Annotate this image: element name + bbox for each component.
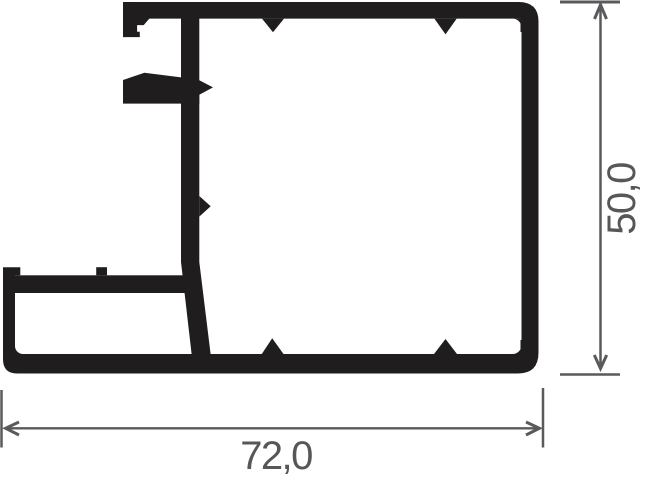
- svg-text:50,0: 50,0: [600, 163, 644, 235]
- svg-text:72,0: 72,0: [240, 434, 312, 478]
